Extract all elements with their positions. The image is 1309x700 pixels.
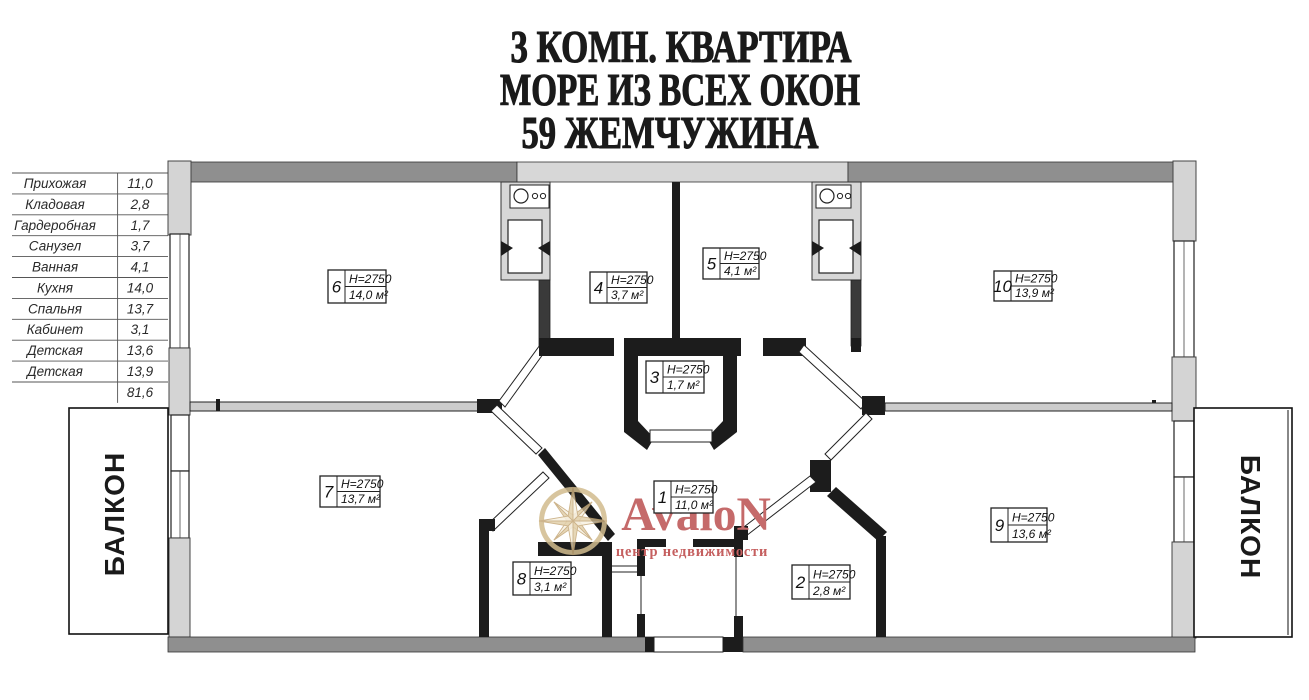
svg-text:4,1 м²: 4,1 м²	[724, 264, 757, 278]
svg-text:14,0: 14,0	[127, 280, 154, 295]
svg-text:Прихожая: Прихожая	[24, 176, 87, 191]
svg-text:Н=2750: Н=2750	[341, 477, 384, 491]
svg-text:Н=2750: Н=2750	[611, 273, 654, 287]
svg-text:3,1 м²: 3,1 м²	[534, 580, 567, 594]
svg-text:3,7: 3,7	[131, 239, 150, 254]
svg-text:3,1: 3,1	[131, 322, 150, 337]
svg-text:Спальня: Спальня	[28, 301, 82, 316]
svg-text:4,1: 4,1	[131, 260, 150, 275]
svg-text:13,9: 13,9	[127, 364, 154, 379]
svg-text:59 ЖЕМЧУЖИНА: 59 ЖЕМЧУЖИНА	[522, 108, 819, 158]
svg-text:Н=2750: Н=2750	[349, 272, 392, 286]
svg-text:Кабинет: Кабинет	[27, 322, 84, 337]
svg-text:11,0: 11,0	[127, 176, 153, 191]
svg-text:Кладовая: Кладовая	[25, 197, 85, 212]
svg-text:2: 2	[795, 573, 806, 592]
svg-text:13,7 м²: 13,7 м²	[341, 492, 381, 506]
svg-text:центр недвижимости: центр недвижимости	[616, 544, 768, 560]
svg-text:Ванная: Ванная	[32, 260, 78, 275]
svg-text:Детская: Детская	[25, 364, 83, 379]
svg-text:Н=2750: Н=2750	[813, 568, 856, 582]
svg-text:5: 5	[707, 255, 717, 274]
svg-text:Н=2750: Н=2750	[667, 363, 710, 377]
svg-text:2,8: 2,8	[130, 197, 150, 212]
svg-text:Кухня: Кухня	[37, 280, 73, 295]
svg-text:13,6: 13,6	[127, 343, 154, 358]
svg-text:Н=2750: Н=2750	[675, 483, 718, 497]
svg-text:4: 4	[594, 279, 603, 298]
svg-text:81,6: 81,6	[127, 385, 154, 400]
svg-text:3,7 м²: 3,7 м²	[611, 288, 644, 302]
svg-text:9: 9	[995, 516, 1005, 535]
svg-text:8: 8	[517, 570, 527, 589]
svg-text:Н=2750: Н=2750	[1015, 272, 1058, 286]
svg-text:13,7: 13,7	[127, 301, 154, 316]
svg-text:10: 10	[993, 277, 1012, 296]
svg-text:13,6 м²: 13,6 м²	[1012, 527, 1052, 541]
svg-text:Гардеробная: Гардеробная	[14, 218, 96, 233]
svg-text:1: 1	[658, 488, 667, 507]
svg-text:1,7: 1,7	[131, 218, 150, 233]
svg-text:3: 3	[650, 368, 660, 387]
svg-text:Н=2750: Н=2750	[724, 249, 767, 263]
svg-text:БАЛКОН: БАЛКОН	[99, 452, 130, 576]
svg-text:Санузел: Санузел	[29, 239, 82, 254]
svg-text:14,0 м²: 14,0 м²	[349, 288, 389, 302]
svg-text:БАЛКОН: БАЛКОН	[1235, 455, 1266, 579]
svg-text:Н=2750: Н=2750	[1012, 511, 1055, 525]
svg-text:13,9 м²: 13,9 м²	[1015, 286, 1055, 300]
svg-text:Н=2750: Н=2750	[534, 564, 577, 578]
svg-text:7: 7	[324, 483, 334, 502]
svg-text:1,7 м²: 1,7 м²	[667, 378, 700, 392]
svg-text:6: 6	[332, 278, 342, 297]
svg-text:Детская: Детская	[25, 343, 83, 358]
svg-text:11,0 м²: 11,0 м²	[675, 498, 714, 512]
svg-text:2,8 м²: 2,8 м²	[812, 584, 846, 598]
